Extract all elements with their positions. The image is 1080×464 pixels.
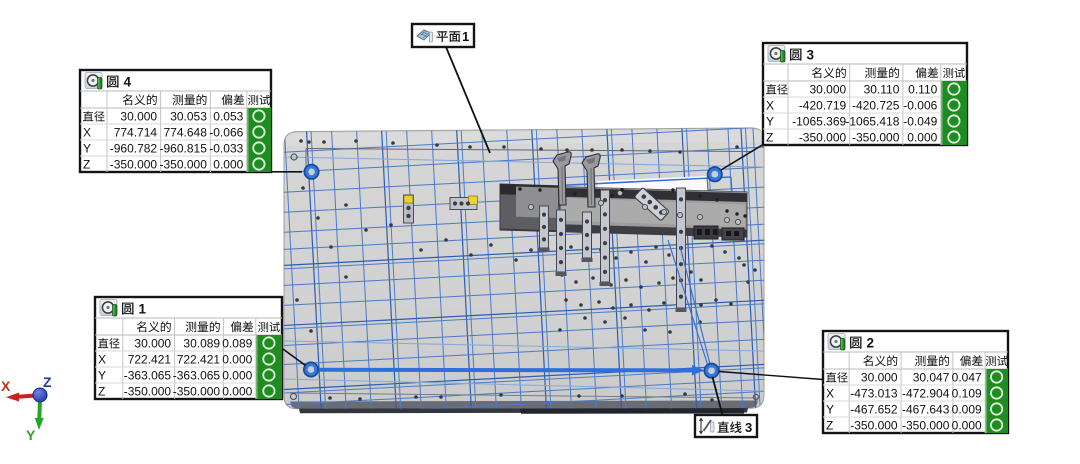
svg-text:30.000: 30.000 [809, 83, 846, 97]
svg-text:30.053: 30.053 [170, 110, 207, 124]
svg-text:X: X [826, 387, 834, 401]
svg-text:-960.782: -960.782 [110, 142, 158, 156]
svg-text:-350.000: -350.000 [799, 131, 847, 145]
svg-text:30.110: 30.110 [864, 83, 900, 97]
svg-text:3: 3 [745, 420, 752, 435]
svg-text:30.089: 30.089 [183, 337, 220, 351]
svg-text:Z: Z [43, 374, 52, 390]
svg-text:0.000: 0.000 [222, 369, 252, 383]
svg-text:1: 1 [462, 29, 469, 44]
svg-text:30.047: 30.047 [913, 371, 950, 385]
svg-text:-473.013: -473.013 [850, 387, 898, 401]
svg-text:Y: Y [26, 427, 36, 443]
svg-text:4: 4 [124, 75, 132, 90]
svg-text:Z: Z [766, 131, 773, 145]
svg-text:0.000: 0.000 [222, 353, 252, 367]
svg-text:-420.719: -420.719 [799, 99, 847, 113]
svg-text:0.000: 0.000 [952, 419, 982, 433]
svg-text:Y: Y [766, 115, 774, 129]
svg-text:-363.065: -363.065 [173, 369, 221, 383]
svg-text:3: 3 [807, 48, 815, 63]
svg-text:Z: Z [826, 419, 833, 433]
svg-text:-350.000: -350.000 [173, 385, 221, 399]
svg-text:0.047: 0.047 [952, 371, 982, 385]
svg-text:30.000: 30.000 [120, 110, 157, 124]
svg-text:-467.652: -467.652 [850, 403, 898, 417]
svg-text:-467.643: -467.643 [902, 403, 950, 417]
svg-text:0.000: 0.000 [213, 158, 243, 172]
svg-text:-350.000: -350.000 [852, 131, 900, 145]
svg-text:Z: Z [83, 158, 90, 172]
svg-text:-350.000: -350.000 [850, 419, 898, 433]
svg-text:Y: Y [83, 142, 91, 156]
svg-text:X: X [1, 378, 11, 394]
svg-text:-960.815: -960.815 [160, 142, 208, 156]
svg-text:-363.065: -363.065 [124, 369, 172, 383]
svg-text:-0.033: -0.033 [209, 142, 243, 156]
svg-text:0.109: 0.109 [952, 387, 982, 401]
svg-text:Y: Y [826, 403, 834, 417]
svg-text:-350.000: -350.000 [124, 385, 172, 399]
svg-text:Z: Z [98, 385, 105, 399]
svg-text:-472.904: -472.904 [902, 387, 950, 401]
svg-text:-0.049: -0.049 [903, 115, 937, 129]
svg-text:774.714: 774.714 [114, 126, 158, 140]
svg-text:-1065.369: -1065.369 [792, 115, 846, 129]
svg-text:-350.000: -350.000 [160, 158, 208, 172]
svg-text:0.000: 0.000 [222, 385, 252, 399]
svg-text:1: 1 [139, 302, 147, 317]
svg-text:0.053: 0.053 [213, 110, 243, 124]
svg-text:0.000: 0.000 [907, 131, 937, 145]
svg-text:0.110: 0.110 [908, 83, 937, 97]
svg-text:-420.725: -420.725 [852, 99, 900, 113]
svg-text:X: X [766, 99, 774, 113]
svg-text:-350.000: -350.000 [902, 419, 950, 433]
svg-text:X: X [98, 353, 106, 367]
svg-text:30.000: 30.000 [134, 337, 171, 351]
svg-text:Y: Y [98, 369, 106, 383]
svg-text:0.089: 0.089 [222, 337, 252, 351]
svg-text:722.421: 722.421 [128, 353, 172, 367]
svg-text:X: X [83, 126, 91, 140]
svg-text:-1065.418: -1065.418 [845, 115, 899, 129]
svg-text:-0.006: -0.006 [903, 99, 937, 113]
svg-text:722.421: 722.421 [177, 353, 221, 367]
svg-text:-0.066: -0.066 [209, 126, 243, 140]
svg-text:0.009: 0.009 [952, 403, 982, 417]
svg-text:-350.000: -350.000 [110, 158, 158, 172]
svg-text:774.648: 774.648 [164, 126, 208, 140]
svg-text:2: 2 [867, 336, 875, 351]
svg-text:30.000: 30.000 [861, 371, 898, 385]
